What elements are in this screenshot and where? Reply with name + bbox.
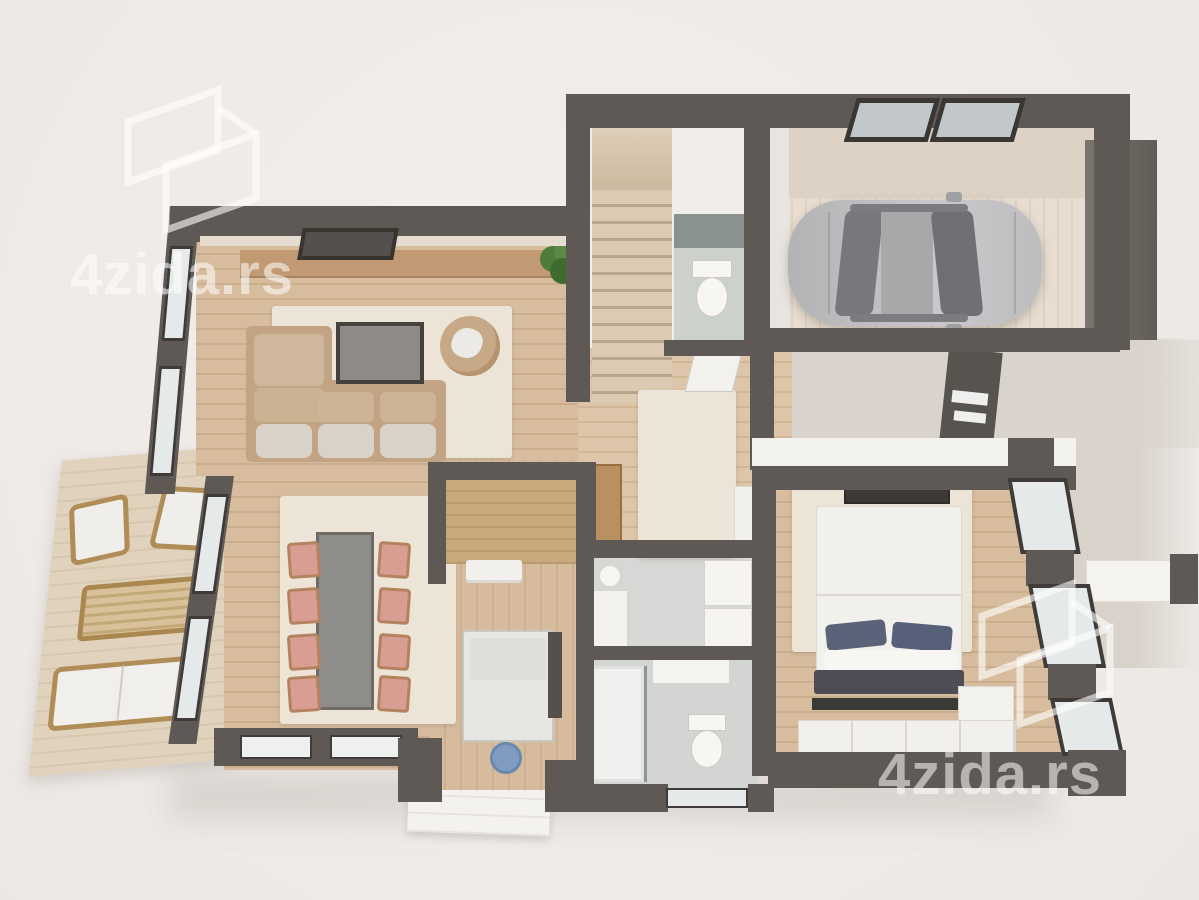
wall-garage-bottom xyxy=(744,328,1120,352)
floorplan-render: 4zida.rs 4zida.rs xyxy=(0,0,1199,900)
entry-closet-panel xyxy=(446,480,576,564)
dining-chair xyxy=(377,633,411,671)
entry-bench xyxy=(466,560,522,580)
bed-throw xyxy=(814,670,964,694)
car-trunk-seam xyxy=(828,212,830,314)
dining-bottom-window xyxy=(330,735,402,759)
car-side-glass xyxy=(850,204,968,212)
bathroom-toilet-bowl xyxy=(691,730,723,768)
wall-bedroom-left xyxy=(752,466,776,776)
dining-chair xyxy=(377,587,411,625)
dining-chair xyxy=(377,675,411,713)
wall-nook-left xyxy=(428,462,446,584)
bedroom-window xyxy=(1050,698,1124,756)
terrace-armchair xyxy=(69,493,130,567)
door-glass-slit xyxy=(953,410,986,423)
staircase xyxy=(592,190,672,402)
dining-table xyxy=(316,532,374,710)
dining-chair xyxy=(287,541,321,579)
roof-skylight xyxy=(930,98,1027,142)
bed-pillow-white xyxy=(824,650,958,670)
wall-bedroom-bottom xyxy=(768,752,1084,788)
door-glass-slit xyxy=(951,390,988,406)
sofa-seat-cushion xyxy=(380,424,436,458)
hall-rug xyxy=(638,390,736,558)
dining-chair xyxy=(377,541,411,579)
blue-bowl xyxy=(490,742,522,774)
wardrobe xyxy=(798,720,1016,756)
tv-panel xyxy=(297,228,399,260)
dining-chair xyxy=(287,675,321,713)
sofa-seat-cushion xyxy=(318,424,374,458)
living-window xyxy=(161,246,193,341)
wall-garage-left xyxy=(744,94,770,350)
back-door-panel xyxy=(939,347,1003,446)
coffee-table xyxy=(336,322,424,384)
car-mirror xyxy=(946,192,962,202)
sofa-cushion xyxy=(254,334,324,386)
shower-glass xyxy=(644,666,647,782)
sofa-cushion xyxy=(254,388,324,422)
sofa-back-cushion xyxy=(380,392,436,422)
laundry-basin xyxy=(598,564,622,588)
wall-laundry-left xyxy=(576,540,594,790)
wall-bedroom-right-chunk xyxy=(1048,664,1096,700)
laundry-cabinet xyxy=(590,590,628,654)
wc-toilet-bowl xyxy=(696,277,728,317)
roof-skylight xyxy=(844,98,941,142)
dining-chair xyxy=(287,633,321,671)
car-side-glass xyxy=(850,314,968,322)
washer xyxy=(704,560,752,606)
bed-duvet-fold xyxy=(816,594,962,596)
car-hood-seam xyxy=(1014,212,1016,314)
wall-garage-right xyxy=(1094,94,1130,350)
car xyxy=(788,192,1042,334)
wall-dining-bottom xyxy=(214,728,418,766)
wc-tiled-wall xyxy=(674,214,746,248)
wall-laundry-top xyxy=(576,540,774,558)
wall-shelf xyxy=(240,250,578,278)
wall-bath-bottom-right xyxy=(748,784,774,812)
wall-top xyxy=(566,94,1114,128)
wall-bedroom-right-chunk xyxy=(1026,550,1074,586)
kitchen-wall-strip xyxy=(548,632,562,718)
bathroom-sink xyxy=(652,658,730,684)
wall-bath-bottom-left xyxy=(576,784,668,812)
sofa-back-cushion xyxy=(318,392,374,422)
wall-bedroom-right-chunk xyxy=(1008,438,1054,480)
bathroom-window xyxy=(666,788,748,808)
wall-bath-divider xyxy=(576,646,774,660)
car-roof xyxy=(881,208,933,318)
kitchen-counter-top xyxy=(470,638,546,680)
wc-toilet-tank xyxy=(692,260,732,278)
dining-chair xyxy=(287,587,321,625)
bed-foot-bench xyxy=(812,698,966,710)
wall-bedroom-corner xyxy=(1068,750,1126,796)
planter-end-cap xyxy=(1170,554,1198,604)
wall-nook-top xyxy=(428,462,596,480)
bathroom-toilet-tank xyxy=(688,714,726,731)
wall-wc-bottom xyxy=(664,340,768,356)
sofa-seat-cushion xyxy=(256,424,312,458)
dining-bottom-window xyxy=(240,735,312,759)
wall-corner-pillar xyxy=(398,738,442,802)
bed-pillow-blue xyxy=(891,621,953,652)
wall-stairs-left xyxy=(566,94,590,402)
